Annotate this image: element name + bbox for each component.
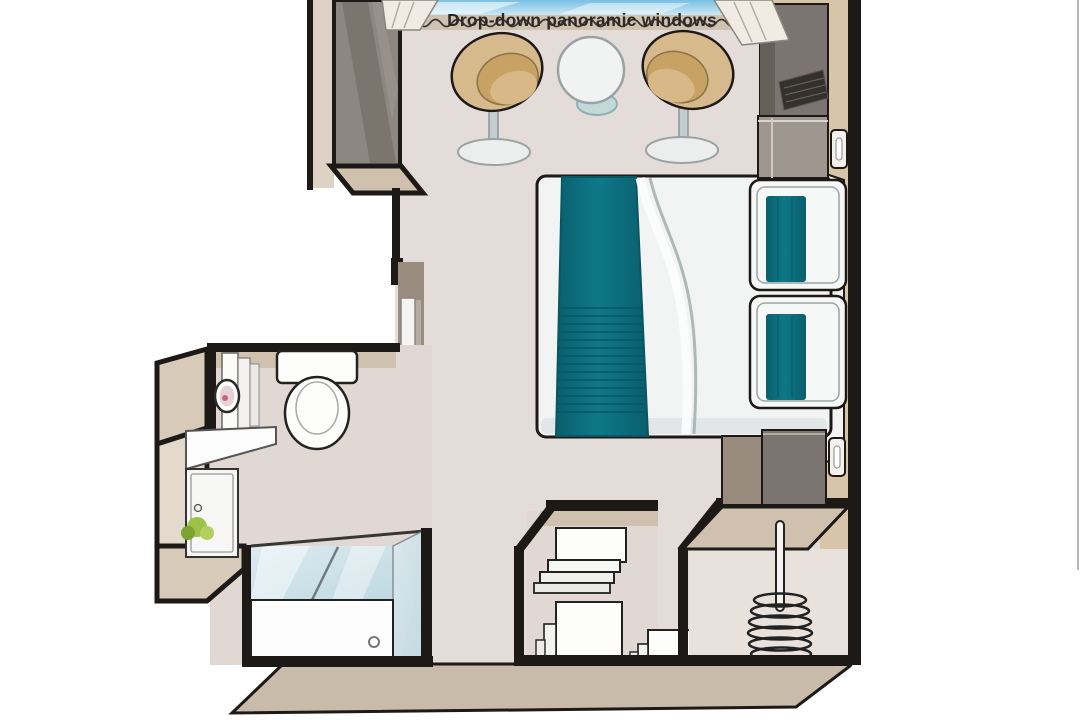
floorplan-page: Drop-down panoramic windows (0, 0, 1080, 720)
round-table (558, 37, 624, 103)
vanity-cabinet (186, 469, 238, 557)
nightstand (722, 430, 826, 505)
shower (242, 528, 433, 667)
floor-slab (232, 664, 850, 713)
teal-bed-runner (556, 177, 648, 436)
hangers (748, 594, 812, 661)
wall-switch-top (831, 130, 847, 168)
media-unit (758, 116, 828, 178)
window-label: Drop-down panoramic windows (447, 10, 717, 30)
shower-glass-side (393, 530, 425, 658)
wardrobe (678, 498, 852, 664)
shower-tray (251, 600, 393, 658)
pillow-top (750, 180, 846, 290)
magnifying-mirror (215, 380, 239, 412)
drain (369, 637, 379, 647)
wall-switch-bottom (829, 438, 845, 476)
hanging-rod (776, 521, 784, 611)
right-edge-line (1077, 0, 1079, 570)
cabin-floorplan: Drop-down panoramic windows (0, 0, 1080, 720)
pillow-bottom (750, 296, 846, 408)
bathroom (157, 343, 433, 667)
closet-shelf-unit (514, 500, 658, 664)
outside-notch (150, 186, 395, 345)
double-bed (537, 174, 846, 462)
